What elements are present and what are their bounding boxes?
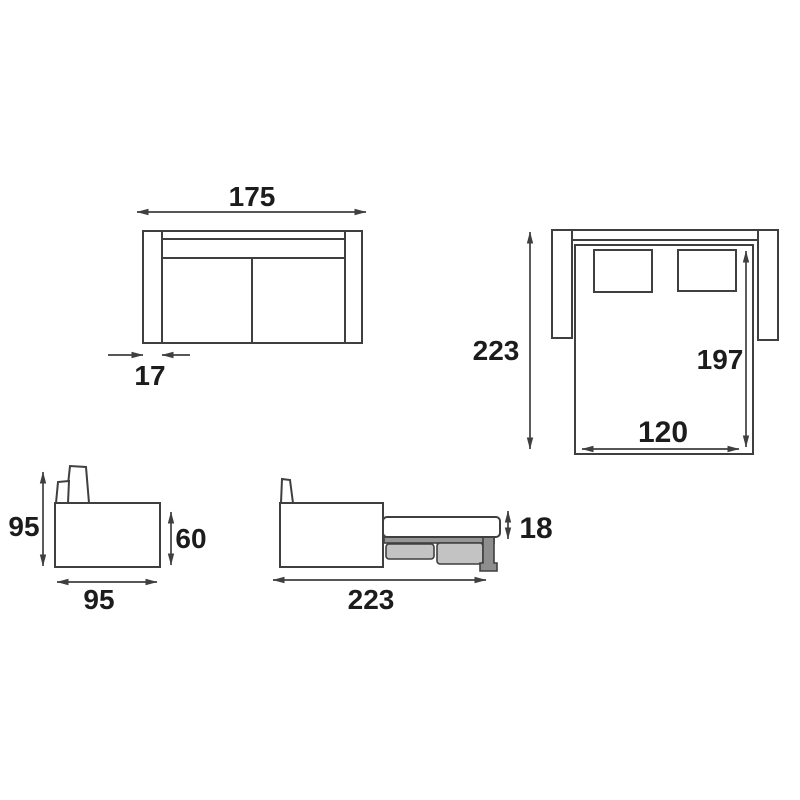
bed-length-dimension-label: 197	[697, 344, 744, 375]
bed-width-dimension-label: 120	[638, 416, 688, 449]
right-armrest-outline	[758, 230, 778, 340]
side-view-open: 18 223	[273, 479, 553, 615]
overall-depth-dimension-label: 223	[473, 335, 520, 366]
overall-width-dimension-label: 175	[229, 181, 276, 212]
pillow-right-outline	[678, 250, 736, 291]
top-view-open: 223 197 120	[473, 230, 778, 454]
headrest-cushion-side-outline	[56, 481, 69, 503]
overall-height-dimension-label: 95	[8, 511, 39, 542]
sofa-dimensions-diagram: 175 17 223 197 120 95 60 95	[0, 0, 800, 800]
drawing-canvas: 175 17 223 197 120 95 60 95	[0, 0, 800, 800]
mattress-thickness-dimension-label: 18	[519, 512, 552, 545]
side-view-closed: 95 60 95	[8, 466, 206, 615]
left-armrest-outline	[552, 230, 572, 338]
bed-support-leg	[480, 537, 497, 571]
armrest-width-dimension-label: 17	[134, 360, 165, 391]
seat-height-dimension-label: 60	[175, 523, 206, 554]
fold-mechanism-segment-left	[386, 544, 434, 559]
front-view-closed: 175 17	[108, 181, 366, 391]
fold-mechanism-segment-right	[437, 543, 483, 564]
open-sofa-body-side-outline	[280, 503, 383, 567]
open-backrest-side-outline	[281, 479, 293, 503]
extended-mattress-outline	[383, 517, 500, 537]
sofa-body-side-outline	[55, 503, 160, 567]
pillow-left-outline	[594, 250, 652, 292]
open-depth-dimension-label: 223	[348, 584, 395, 615]
depth-dimension-label: 95	[83, 584, 114, 615]
backrest-bar-outline	[552, 230, 778, 240]
